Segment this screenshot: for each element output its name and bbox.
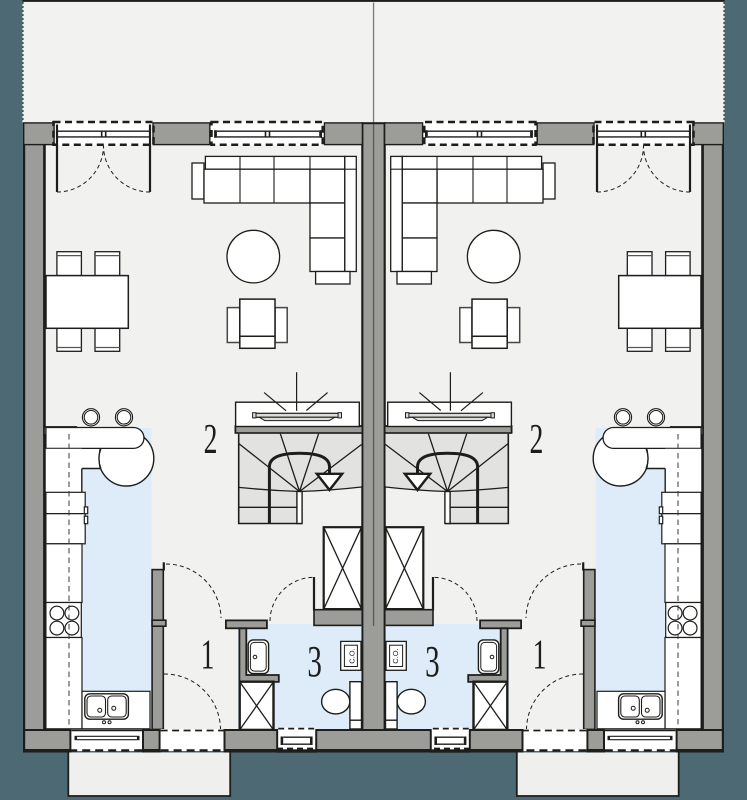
svg-text:C.O.: C.O. [391,648,400,663]
svg-text:1: 1 [201,631,215,678]
svg-text:2: 2 [204,415,218,462]
svg-text:1: 1 [533,631,547,678]
svg-text:3: 3 [425,638,440,686]
svg-text:2: 2 [529,415,543,462]
svg-text:C.O.: C.O. [347,648,356,663]
svg-text:3: 3 [307,638,322,686]
